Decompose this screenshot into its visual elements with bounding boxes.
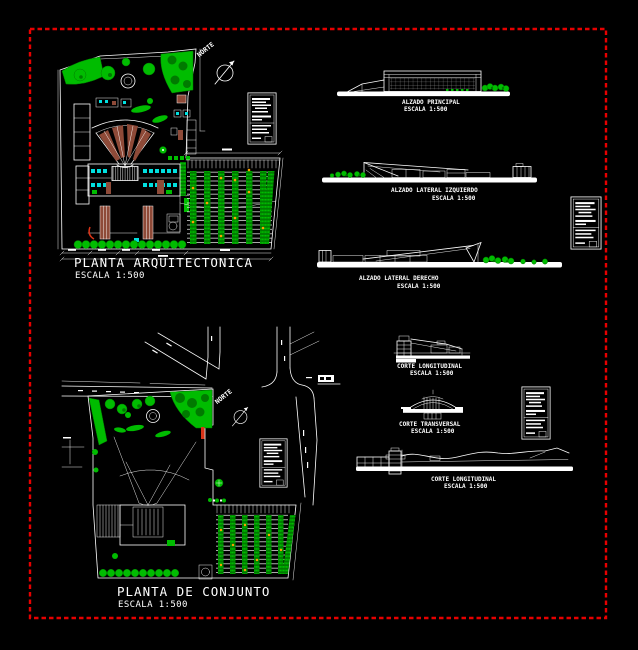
conjunto-info-block	[260, 439, 287, 487]
cortes-title-block	[522, 387, 550, 439]
alzado-lateral-derecho-scale: ESCALA 1:500	[397, 284, 440, 290]
alzado-lateral-izquierdo-scale: ESCALA 1:500	[432, 196, 475, 202]
alzado-principal-drawing	[337, 71, 510, 96]
street-label-remnant	[318, 375, 340, 384]
pa-hedge	[74, 241, 186, 249]
alzado-lateral-derecho-title: ALZADO LATERAL DERECHO	[359, 276, 438, 282]
corte-transversal-scale: ESCALA 1:500	[411, 429, 454, 435]
sheet-border	[30, 29, 606, 618]
drawing-canvas	[0, 0, 638, 650]
planta-arquitectonica-scale: ESCALA 1:500	[75, 272, 145, 281]
corte-longitudinal-inferior-scale: ESCALA 1:500	[444, 484, 487, 490]
corte-longitudinal-superior-scale: ESCALA 1:500	[410, 371, 453, 377]
alzado-lateral-derecho-drawing	[317, 243, 562, 268]
pa-north-arrow-icon	[215, 61, 234, 84]
corte-longitudinal-superior-drawing	[394, 336, 470, 363]
pa-auditorium-fan	[92, 120, 158, 168]
planta-de-conjunto-drawing	[62, 327, 319, 580]
planta-arquitectonica-title: PLANTA ARQUITECTONICA	[74, 257, 253, 270]
cad-sheet: PLANTA ARQUITECTONICA ESCALA 1:500 NORTE…	[0, 0, 638, 650]
conjunto-amphitheater	[114, 437, 196, 506]
pa-plaza	[88, 196, 180, 242]
corte-transversal-drawing	[401, 390, 463, 419]
conjunto-hedge	[99, 569, 179, 577]
conjunto-parking	[216, 505, 296, 575]
corte-longitudinal-inferior-drawing	[356, 448, 573, 474]
alzado-lateral-izquierdo-title: ALZADO LATERAL IZQUIERDO	[391, 188, 478, 194]
planta-de-conjunto-title: PLANTA DE CONJUNTO	[117, 586, 270, 599]
pa-title-block	[248, 93, 276, 144]
alzado-lateral-izquierdo-drawing	[322, 163, 537, 183]
elevations-title-block	[571, 197, 601, 249]
planta-de-conjunto-scale: ESCALA 1:500	[118, 601, 188, 610]
alzado-principal-scale: ESCALA 1:500	[404, 107, 447, 113]
pa-parking	[184, 149, 283, 254]
conjunto-north-arrow-icon	[232, 407, 247, 426]
planta-arquitectonica-drawing	[58, 49, 283, 261]
